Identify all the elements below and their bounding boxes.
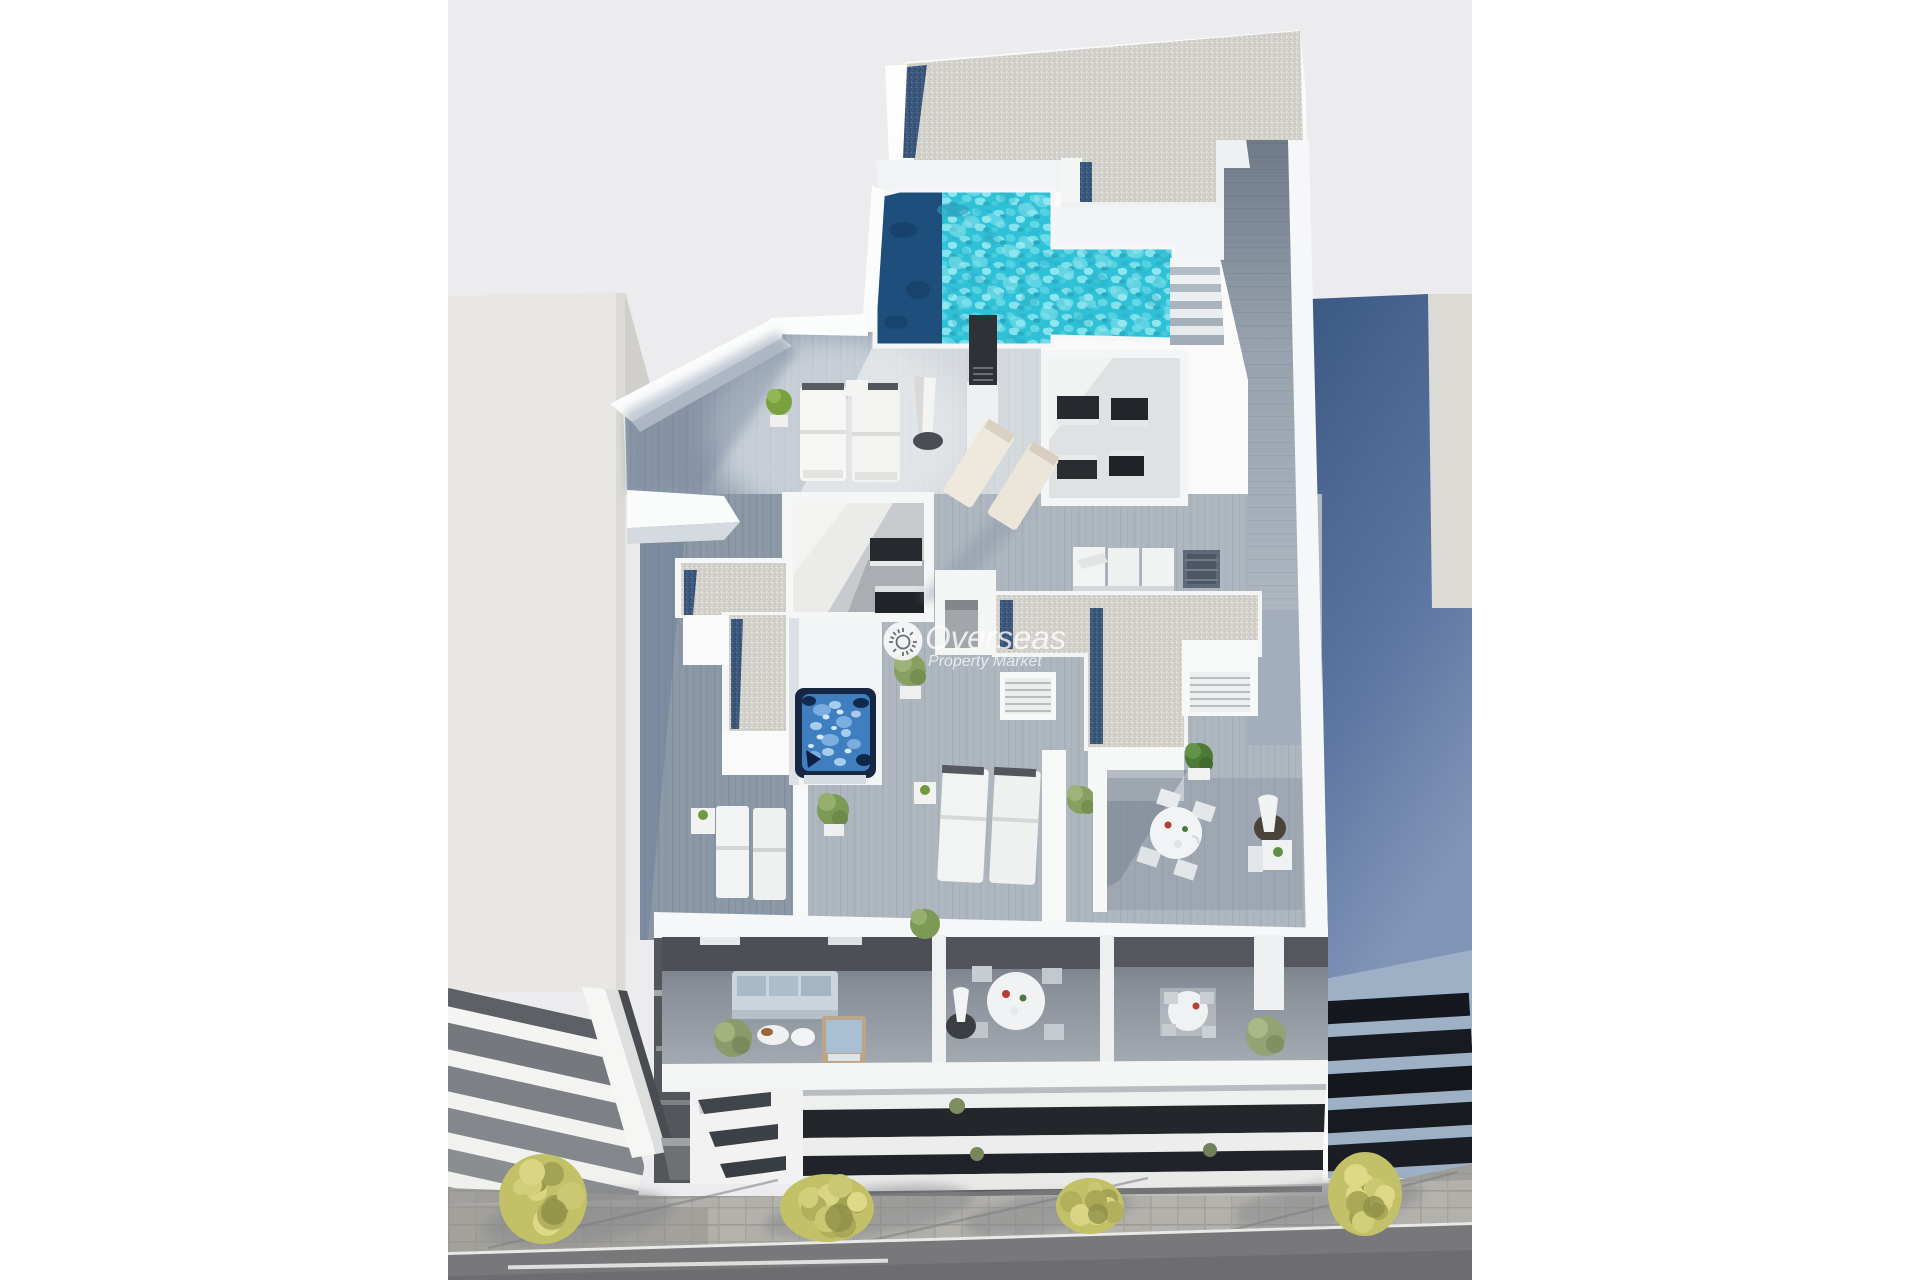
svg-text:Property Market: Property Market xyxy=(928,653,1042,670)
svg-text:Overseas: Overseas xyxy=(925,619,1066,656)
